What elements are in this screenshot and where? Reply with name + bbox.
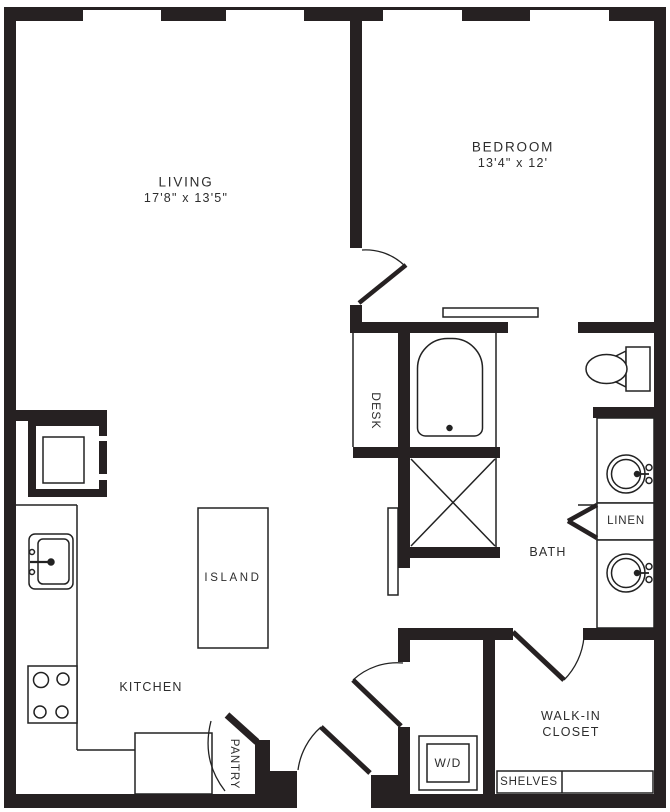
window-icon — [226, 10, 304, 21]
window-icon — [530, 10, 609, 21]
sliding-door-icon — [388, 508, 398, 595]
wall-vanity-bottom — [583, 628, 654, 640]
bath-label: BATH — [529, 545, 566, 559]
floor-plan: LIVING 17'8" x 13'5" BEDROOM 13'4" x 12'… — [0, 0, 670, 812]
wall-right — [654, 7, 666, 808]
toilet-icon — [586, 347, 650, 391]
kitchen-sink-icon — [29, 534, 73, 589]
linen-label: LINEN — [607, 515, 645, 527]
walk-in-closet-label-line1: WALK-IN — [541, 709, 601, 723]
alcove-notch — [99, 474, 107, 480]
shelves-label: SHELVES — [500, 776, 558, 788]
island-label: ISLAND — [204, 572, 261, 584]
pantry-label: PANTRY — [228, 739, 240, 789]
bedroom-dims: 13'4" x 12' — [478, 156, 548, 170]
door-swing-icon — [359, 250, 406, 303]
door-swing-icon — [513, 632, 584, 680]
shower-icon — [411, 459, 495, 546]
wall-living-bedroom — [350, 7, 362, 248]
wall-toilet-nook-top — [578, 322, 654, 333]
door-swing-icon — [298, 727, 370, 773]
wall-shower-top — [353, 447, 500, 458]
living-room-label: LIVING — [158, 175, 213, 190]
wall-shower-left — [398, 458, 410, 568]
refrigerator-icon — [135, 733, 212, 794]
wall-wd-left-lower — [398, 727, 410, 794]
living-room-dims: 17'8" x 13'5" — [144, 191, 228, 205]
wall-entry-right — [371, 775, 398, 794]
stove-icon — [28, 666, 77, 723]
wall-shower-bottom — [410, 547, 500, 558]
wall-entry-left — [270, 771, 297, 794]
wall-pantry-right — [255, 740, 270, 794]
wall-wd-left-stub — [398, 640, 410, 662]
wall-bedroom-bottom — [350, 322, 508, 333]
kitchen-label: KITCHEN — [119, 680, 182, 694]
wall-desk-tub-divider — [398, 333, 410, 447]
bedroom-shelf-icon — [443, 308, 538, 317]
wall-bottom-left — [4, 794, 297, 808]
door-swing-icon — [353, 663, 403, 726]
window-icon — [383, 10, 462, 21]
wall-bottom-right — [371, 794, 666, 808]
bedroom-label: BEDROOM — [472, 140, 554, 155]
walk-in-closet-label-line2: CLOSET — [542, 725, 599, 739]
wall-vanity-top — [593, 407, 654, 418]
linen-door-icon — [568, 505, 597, 538]
wall-wd-closet-divider — [483, 640, 495, 794]
bathtub-icon — [418, 339, 483, 437]
washer-dryer-label: W/D — [435, 756, 462, 770]
wall-left — [4, 7, 16, 808]
desk-label: DESK — [369, 392, 383, 429]
alcove-notch — [99, 436, 107, 441]
walls — [4, 7, 666, 808]
windows — [36, 10, 609, 489]
window-icon — [83, 10, 161, 21]
floorplan-canvas — [0, 0, 670, 812]
wall-wd-top — [398, 628, 513, 640]
counter-lines — [16, 333, 597, 750]
built-in-appliance-icon — [43, 437, 84, 483]
